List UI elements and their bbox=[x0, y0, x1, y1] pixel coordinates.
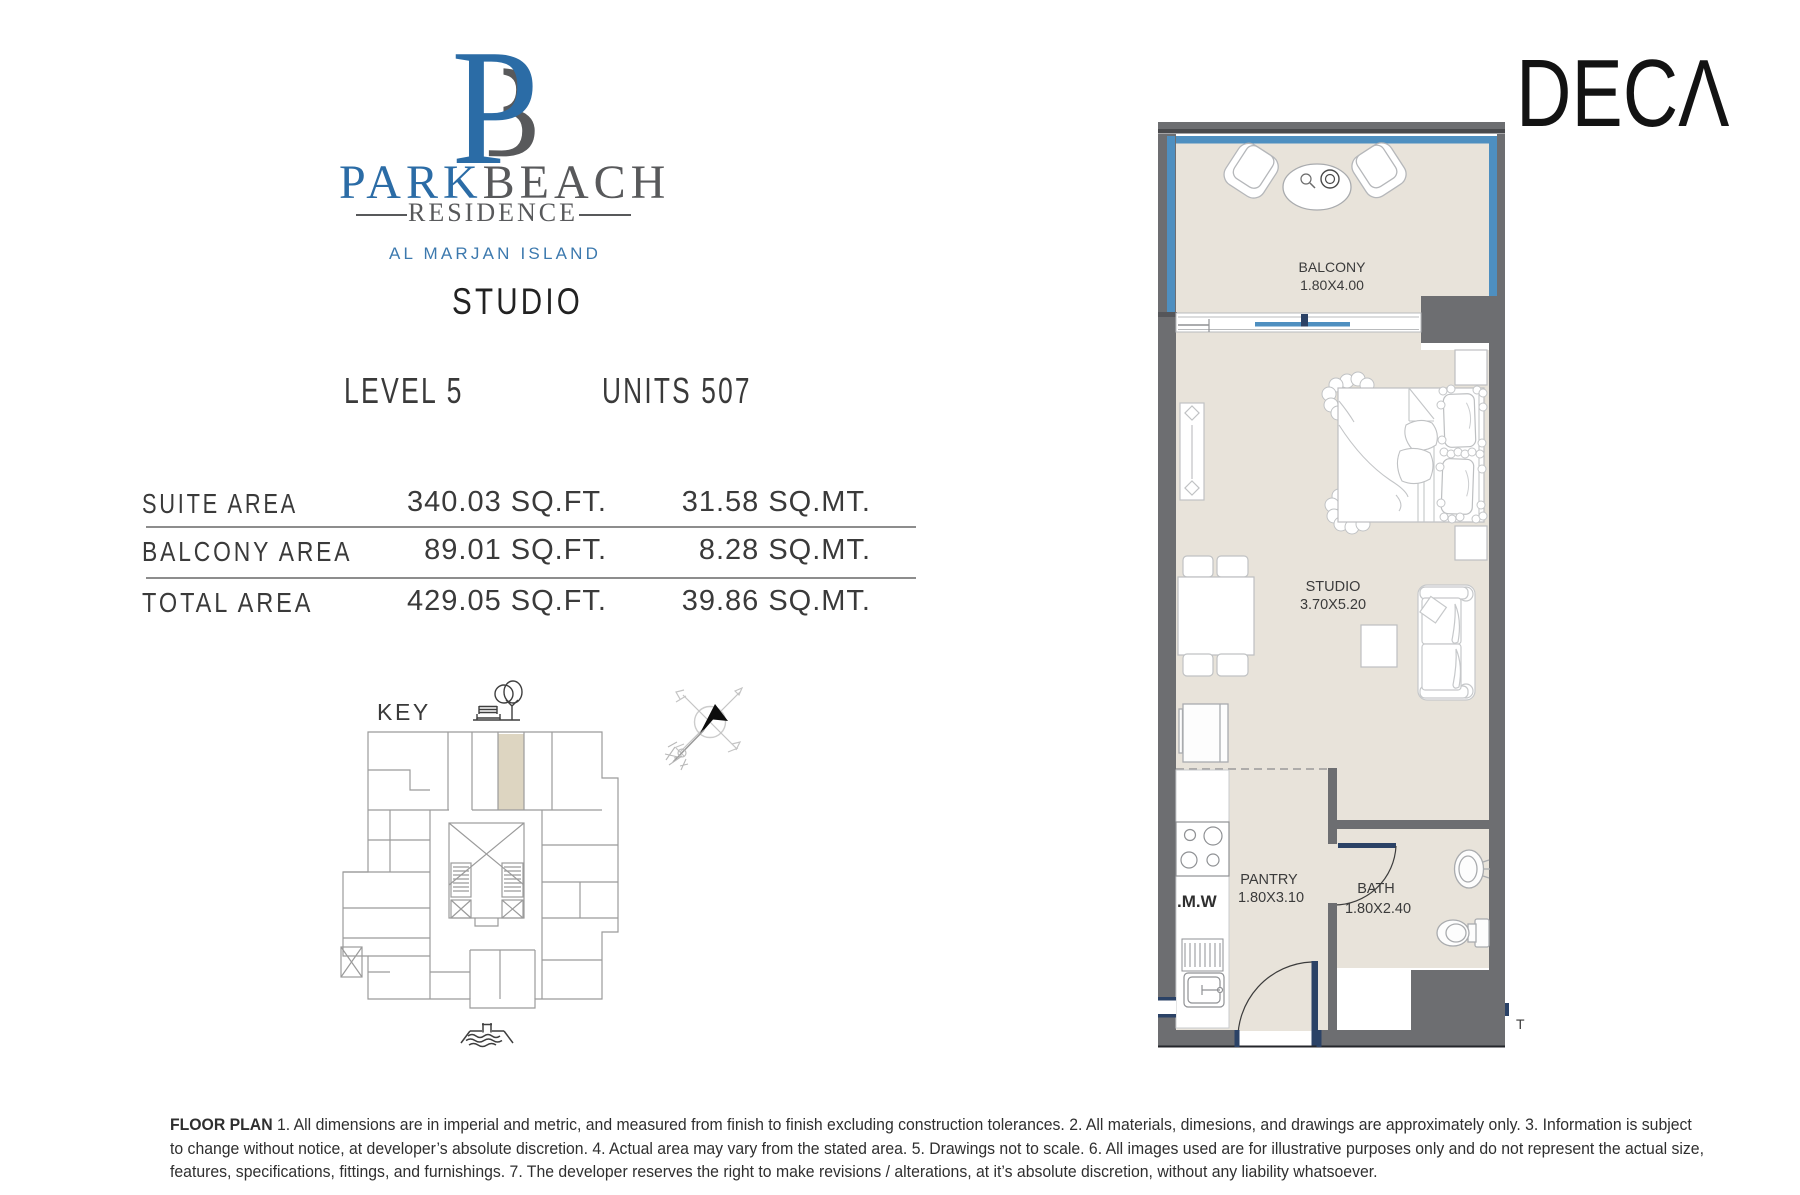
svg-text:P: P bbox=[451, 40, 539, 170]
svg-text:BATH: BATH bbox=[1357, 881, 1395, 897]
svg-text:T: T bbox=[1516, 1016, 1525, 1032]
svg-text:PANTRY: PANTRY bbox=[1240, 872, 1298, 888]
svg-text:BALCONY: BALCONY bbox=[1299, 259, 1367, 275]
svg-text:STUDIO: STUDIO bbox=[1306, 579, 1361, 595]
svg-text:3.70X5.20: 3.70X5.20 bbox=[1300, 597, 1366, 613]
svg-text:1.80X2.40: 1.80X2.40 bbox=[1345, 901, 1411, 917]
svg-text:1.80X4.00: 1.80X4.00 bbox=[1300, 277, 1364, 293]
svg-text:1.80X3.10: 1.80X3.10 bbox=[1238, 890, 1304, 906]
svg-text:.M.W: .M.W bbox=[1177, 892, 1218, 911]
